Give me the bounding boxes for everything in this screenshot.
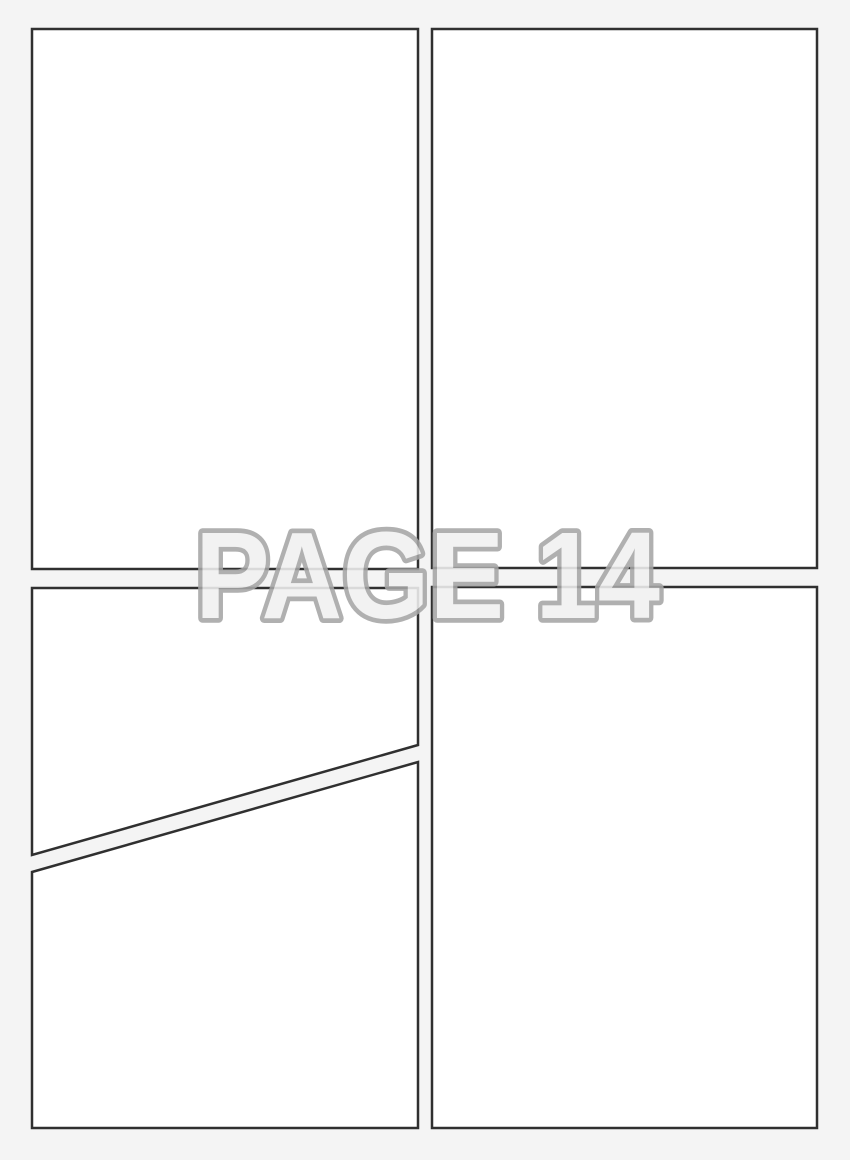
panel-top-right [432,29,817,568]
panel-top-left [32,29,418,569]
page-number-watermark: PAGE 14 [195,508,660,645]
page-background: { "page": { "type": "blank-comic-page-te… [0,0,850,1160]
panel-bottom-right [432,587,817,1128]
comic-page-svg: PAGE 14 [0,0,850,1160]
comic-page-template: PAGE 14 [0,0,850,1160]
